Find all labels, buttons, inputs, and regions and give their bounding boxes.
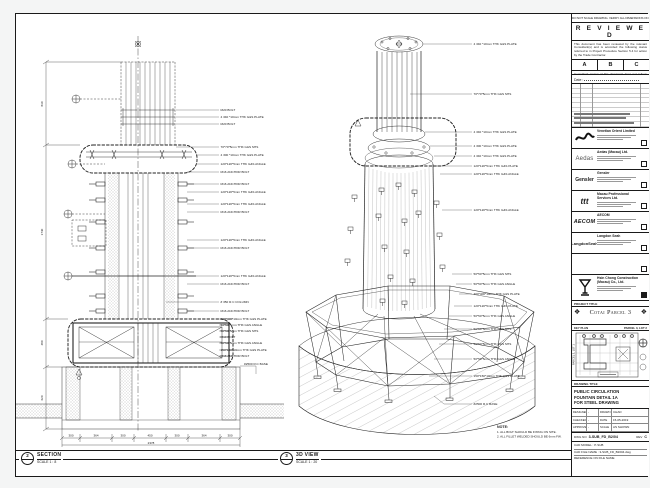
checkbox <box>641 233 649 253</box>
svg-text:# 350 R.C COLUMN: # 350 R.C COLUMN <box>221 300 249 304</box>
svg-text:400*400*10mm THK G&S PLATE: 400*400*10mm THK G&S PLATE <box>474 292 520 296</box>
consultant-row-empty <box>572 254 649 275</box>
section-view-caption: 2 SECTION SCALE 1 : 8 <box>19 452 63 465</box>
svg-text:#2500 R.C BASE: #2500 R.C BASE <box>244 362 268 366</box>
langdon-seah-logo: LangdonSeah <box>572 233 597 253</box>
svg-text:120*120*5mm THK G&S ANGLE: 120*120*5mm THK G&S ANGLE <box>221 202 266 206</box>
svg-text:M16 ANCHOR BOLT: M16 ANCHOR BOLT <box>221 354 250 358</box>
svg-text:120*120*5mm THK G&S ANGLE: 120*120*5mm THK G&S ANGLE <box>221 190 266 194</box>
section-view-panel: 830 1740 480 620 300 364 300 450 300 364… <box>16 14 284 451</box>
cad-reference: REFERENCE ON FILE NAME <box>574 456 647 462</box>
scale-value: AS SHOWN <box>612 424 649 432</box>
svg-text:M16 ANCHOR BOLT: M16 ANCHOR BOLT <box>221 282 250 286</box>
svg-text:620: 620 <box>40 395 44 400</box>
svg-text:50*50*5mm THK G&S ANGLE: 50*50*5mm THK G&S ANGLE <box>221 323 263 327</box>
checked-label: CHECKED <box>572 417 587 425</box>
svg-text:364: 364 <box>93 434 98 438</box>
dwg-no-value: 3-SUB_FD_B2/04 <box>589 435 618 439</box>
drawing-sheet-screenshot: 830 1740 480 620 300 364 300 450 300 364… <box>0 0 650 488</box>
svg-text:150*150*10mm THK G&S PLATE: 150*150*10mm THK G&S PLATE <box>221 348 267 352</box>
consultant-row-gensler: Gensler Gensler <box>572 170 649 191</box>
dwg-no-label: DWG NO <box>574 435 587 439</box>
iso-view-caption: 3 3D VIEW SCALE 1 : 20 <box>278 452 321 465</box>
svg-text:50*50*5mm THK G&S ANGLE: 50*50*5mm THK G&S ANGLE <box>221 341 263 345</box>
svg-text:400*400*10mm THK G&S PLATE: 400*400*10mm THK G&S PLATE <box>221 317 267 321</box>
iso-view-drawing: 4 340 *10mm THK G&S PLATE 70*70*5mm THK … <box>284 14 571 451</box>
drawing-title-section: DRAWING TITLE PUBLIC CIRCULATION FOUNTAI… <box>572 381 649 409</box>
svg-text:120*120*5mm THK G&S PLATE: 120*120*5mm THK G&S PLATE <box>474 164 518 168</box>
approved-label: APPROVED <box>572 424 587 432</box>
svg-text:2378: 2378 <box>148 441 155 445</box>
svg-text:70*70*5mm THK G&S SHS: 70*70*5mm THK G&S SHS <box>221 145 259 149</box>
address-lines <box>597 286 640 291</box>
consultant-row-langdon-seah: LangdonSeah Langdon Seah <box>572 233 649 254</box>
svg-text:50*50*5mm THK G&S ANGLE: 50*50*5mm THK G&S ANGLE <box>474 282 516 286</box>
emblem-icon: ❖ <box>641 309 647 316</box>
svg-text:50*50*5mm THK G&S SHS: 50*50*5mm THK G&S SHS <box>474 327 512 331</box>
emblem-icon: ❖ <box>574 309 580 316</box>
svg-text:4 300 *10mm THK G&S PLATE: 4 300 *10mm THK G&S PLATE <box>221 153 264 157</box>
svg-text:450: 450 <box>147 434 152 438</box>
date-field-label: DATE <box>599 417 612 425</box>
anchor-bolts <box>89 182 194 313</box>
cad-file-name: CAD FILE NAME : 3-SUB_FD_B2004.dwg <box>574 449 647 457</box>
address-lines <box>597 219 640 224</box>
pedestal-bracing <box>79 323 222 363</box>
svg-text:4 340 *10mm THK G&S PLATE: 4 340 *10mm THK G&S PLATE <box>474 42 517 46</box>
svg-text:300: 300 <box>120 434 125 438</box>
section-bubble: 2 <box>21 452 34 465</box>
reviewed-paragraph-1: This document has been reviewed by the r… <box>572 41 649 59</box>
checkbox <box>641 191 649 211</box>
section-view-drawing: 830 1740 480 620 300 364 300 450 300 364… <box>16 14 284 451</box>
cad-reference-rows: CAD MODEL : P-SUB CAD FILE NAME : 3-SUB_… <box>572 442 649 476</box>
section-title: SECTION <box>37 452 61 460</box>
key-plan-map: PARCEL 3, LOT 1 <box>572 331 649 379</box>
address-lines <box>597 202 640 207</box>
drawn-value: CHAD <box>612 409 649 417</box>
consultant-row-venetian: Venetian Orient Limited <box>572 128 649 149</box>
svg-text:364: 364 <box>201 434 206 438</box>
svg-text:50*50*5mm THK G&S ANGLE: 50*50*5mm THK G&S ANGLE <box>474 314 516 318</box>
iso-callout-labels: 4 340 *10mm THK G&S PLATE 70*70*5mm THK … <box>474 42 520 406</box>
section-scale: SCALE 1 : 8 <box>37 460 61 464</box>
svg-text:M16 ANCHOR BOLT: M16 ANCHOR BOLT <box>221 210 250 214</box>
svg-text:50*50*5mm THK G&S SHS: 50*50*5mm THK G&S SHS <box>474 342 512 346</box>
svg-text:1. ALL BOLT SHOULD BE FIXING O: 1. ALL BOLT SHOULD BE FIXING ON SITE. <box>497 430 557 434</box>
date-value: 15-05-2019 <box>612 417 649 425</box>
contractor-row: Hsin Chong Construction (Macau) Co., Ltd… <box>572 275 649 301</box>
designed-label: DESIGNED <box>572 409 587 417</box>
svg-text:150*150*10mm THK G&S PLATE: 150*150*10mm THK G&S PLATE <box>474 374 520 378</box>
reviewed-stamp: R E V I E W E D This document has been r… <box>572 23 649 75</box>
drawn-label: DRAWN <box>599 409 612 417</box>
address-lines <box>597 240 640 245</box>
svg-text:#2500 R.C BASE: #2500 R.C BASE <box>474 402 498 406</box>
gensler-logo: Gensler <box>572 170 597 190</box>
rev-value: C <box>644 435 647 439</box>
checkbox <box>641 254 649 274</box>
key-plan-label: KEY PLAN <box>574 326 588 330</box>
svg-text:M10 BOLT: M10 BOLT <box>221 335 236 339</box>
status-box-c: C <box>624 60 649 70</box>
title-block: DO NOT SCALE DRAWING. VERIFY ALL DIMENSI… <box>571 14 649 476</box>
iso-scale: SCALE 1 : 20 <box>296 460 319 464</box>
scale-label: SCALE <box>599 424 612 432</box>
svg-text:120*120*5mm THK G&S ANGLE: 120*120*5mm THK G&S ANGLE <box>474 208 519 212</box>
svg-text:300: 300 <box>227 434 232 438</box>
checked-value: - <box>587 417 599 425</box>
key-plan-lot: PARCEL 3, LOT 2 <box>624 326 647 330</box>
hsin-chong-logo <box>572 275 597 300</box>
iso-title: 3D VIEW <box>296 452 319 460</box>
svg-text:830: 830 <box>40 101 44 106</box>
svg-text:NOTE:: NOTE: <box>497 425 508 429</box>
reviewed-title: R E V I E W E D <box>572 23 649 41</box>
svg-text:120*120*5mm THK G&S ANGLE: 120*120*5mm THK G&S ANGLE <box>221 238 266 242</box>
approved-value: - <box>587 424 599 432</box>
section-callout-labels: M20 BOLT 4 340 *10mm THK G&S PLATE M20 B… <box>221 108 268 366</box>
address-lines <box>597 156 640 161</box>
svg-text:50*50*5mm THK G&S ANGLE: 50*50*5mm THK G&S ANGLE <box>474 357 516 361</box>
svg-text:4 340 *10mm THK G&S PLATE: 4 340 *10mm THK G&S PLATE <box>474 154 517 158</box>
key-plan-lot-left: PARCEL 3, LOT 1 <box>572 344 576 365</box>
svg-text:480: 480 <box>40 340 44 345</box>
project-title: Cotai Parcel 3 <box>590 309 632 316</box>
svg-text:70*70*5mm THK G&S SHS: 70*70*5mm THK G&S SHS <box>474 92 512 96</box>
checkbox <box>641 212 649 232</box>
date-label: Date : <box>574 78 583 82</box>
caption-strip: 2 SECTION SCALE 1 : 8 3 3D VIEW SCALE 1 … <box>16 450 571 476</box>
checkbox <box>641 170 649 190</box>
svg-text:M20 BOLT: M20 BOLT <box>221 108 236 112</box>
svg-text:300: 300 <box>174 434 179 438</box>
address-lines <box>597 135 640 140</box>
svg-text:120*120*5mm THK G&S ANGLE: 120*120*5mm THK G&S ANGLE <box>474 172 519 176</box>
designed-value: - <box>587 409 599 417</box>
venetian-orient-logo <box>572 128 597 148</box>
iso-bubble: 3 <box>280 452 293 465</box>
building-outline <box>584 339 606 369</box>
checkbox <box>641 149 649 169</box>
svg-text:4 340 *10mm THK G&S PLATE: 4 340 *10mm THK G&S PLATE <box>221 115 264 119</box>
date-line <box>584 77 639 81</box>
aedas-logo: Aedas <box>572 149 597 169</box>
drawing-title-line: FOR STEEL DRAWING <box>574 400 647 406</box>
revision-table <box>572 84 649 128</box>
consultant-row-aecom: AECOM AECOM <box>572 212 649 233</box>
rev-label: REV <box>636 435 642 439</box>
status-box-b: B <box>598 60 624 70</box>
svg-text:4 340 *10mm THK G&S PLATE: 4 340 *10mm THK G&S PLATE <box>474 130 517 134</box>
consultant-row-mps: ttt Macau Professional Services Ltd. <box>572 191 649 212</box>
contractor-marker <box>641 275 649 300</box>
project-title-section: PROJECT TITLE ❖ Cotai Parcel 3 ❖ <box>572 301 649 325</box>
signature-fields: DESIGNED - DRAWN CHAD CHECKED - DATE 15-… <box>572 409 649 433</box>
iso-view-panel: 4 340 *10mm THK G&S PLATE 70*70*5mm THK … <box>284 14 571 451</box>
aecom-logo: AECOM <box>572 212 597 232</box>
status-boxes: A B C <box>572 59 649 71</box>
svg-text:4 300 *10mm THK G&S PLATE: 4 300 *10mm THK G&S PLATE <box>474 144 517 148</box>
svg-text:M16 ANCHOR BOLT: M16 ANCHOR BOLT <box>221 182 250 186</box>
svg-text:50*50*5mm THK G&S SHS: 50*50*5mm THK G&S SHS <box>221 329 259 333</box>
svg-text:50*50*5mm THK G&S SHS: 50*50*5mm THK G&S SHS <box>474 272 512 276</box>
general-note: NOTE: 1. ALL BOLT SHOULD BE FIXING ON SI… <box>497 425 562 439</box>
svg-text:M20 BOLT: M20 BOLT <box>221 122 236 126</box>
consultant-row-aedas: Aedas Aedas (Macau) Ltd. <box>572 149 649 170</box>
svg-text:2. ALL FILLET WELDED SHOULD BE: 2. ALL FILLET WELDED SHOULD BE 6mm FW. <box>497 435 562 439</box>
address-lines <box>597 177 640 182</box>
iso-callout-leaders <box>410 44 472 404</box>
status-box-a: A <box>572 60 598 70</box>
svg-text:1740: 1740 <box>40 228 44 235</box>
dwg-number-row: DWG NO 3-SUB_FD_B2/04 REV C <box>572 433 649 442</box>
svg-text:M16 ANCHOR BOLT: M16 ANCHOR BOLT <box>221 170 250 174</box>
svg-text:120*120*5mm THK G&S ANGLE: 120*120*5mm THK G&S ANGLE <box>221 274 266 278</box>
svg-text:M16 ANCHOR BOLT: M16 ANCHOR BOLT <box>221 246 250 250</box>
date-row: Date : <box>572 75 649 84</box>
svg-text:120*120*5mm THK G&S ANGLE: 120*120*5mm THK G&S ANGLE <box>221 162 266 166</box>
checkbox <box>641 128 649 148</box>
key-plan-section: KEY PLAN PARCEL 3, LOT 2 <box>572 325 649 381</box>
bolt-flag-symbols <box>64 95 196 280</box>
sheet-border: 830 1740 480 620 300 364 300 450 300 364… <box>15 13 648 477</box>
svg-text:M16 ANCHOR BOLT: M16 ANCHOR BOLT <box>221 309 250 313</box>
do-not-scale-note: DO NOT SCALE DRAWING. VERIFY ALL DIMENSI… <box>572 14 649 23</box>
svg-text:120*120*5mm THK G&S PLATE: 120*120*5mm THK G&S PLATE <box>474 304 518 308</box>
mps-logo: ttt <box>572 191 597 211</box>
svg-text:300: 300 <box>68 434 73 438</box>
